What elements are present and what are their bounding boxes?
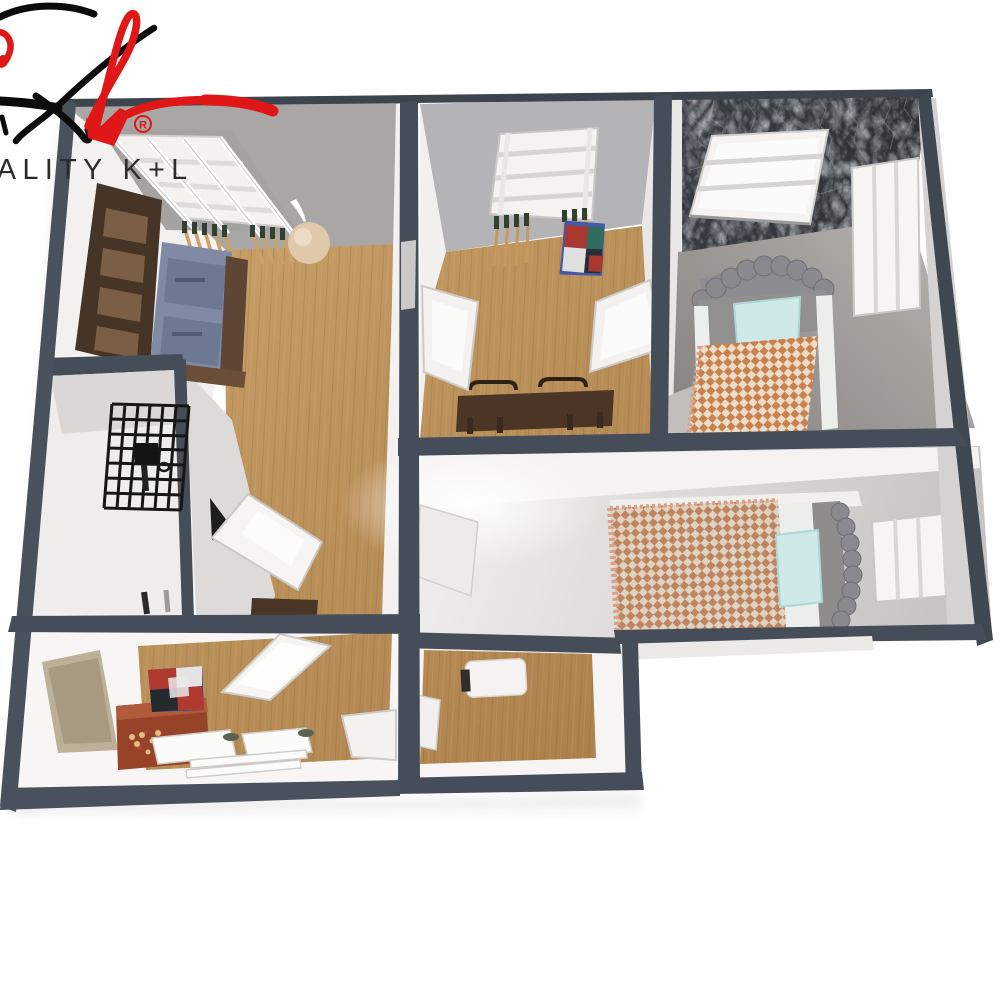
svg-text:ALITY K+L: ALITY K+L bbox=[0, 154, 194, 186]
svg-text:R: R bbox=[139, 120, 147, 132]
